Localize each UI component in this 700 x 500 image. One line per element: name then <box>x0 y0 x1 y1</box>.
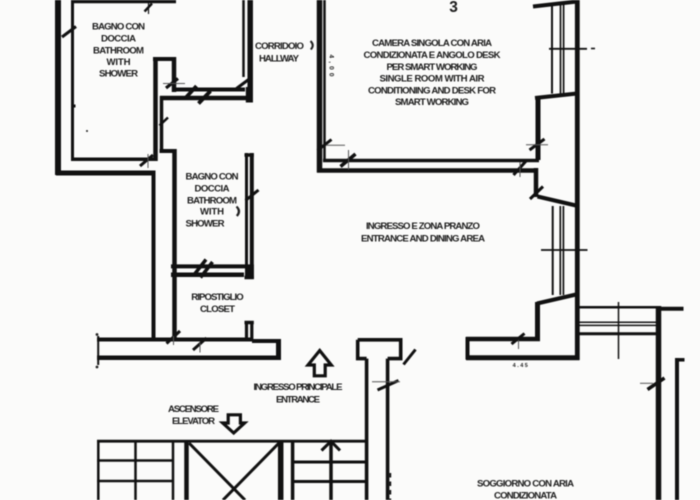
svg-text:ELEVATOR: ELEVATOR <box>172 416 215 427</box>
svg-text:CLOSET: CLOSET <box>200 304 235 315</box>
svg-text:DOCCIA: DOCCIA <box>101 34 136 45</box>
svg-text:CONDITIONING AND DESK FOR: CONDITIONING AND DESK FOR <box>368 86 496 97</box>
svg-text:ENTRANCE: ENTRANCE <box>276 395 321 406</box>
svg-text:3: 3 <box>449 0 458 16</box>
svg-text:4,00: 4,00 <box>328 55 335 77</box>
svg-text:CONDIZIONATA: CONDIZIONATA <box>494 491 557 500</box>
svg-text:SINGLE ROOM WITH AIR: SINGLE ROOM WITH AIR <box>380 74 485 85</box>
svg-text:CAMERA SINGOLA CON ARIA: CAMERA SINGOLA CON ARIA <box>372 38 492 49</box>
svg-text:BAGNO CON: BAGNO CON <box>92 22 145 33</box>
svg-text:ENTRANCE AND DINING AREA: ENTRANCE AND DINING AREA <box>361 234 485 245</box>
svg-text:PER SMART WORKING: PER SMART WORKING <box>387 62 478 73</box>
svg-text:INGRESSO E ZONA PRANZO: INGRESSO E ZONA PRANZO <box>366 221 481 232</box>
svg-text:BAGNO CON: BAGNO CON <box>186 172 239 183</box>
svg-text:CONDIZIONATA E ANGOLO DESK: CONDIZIONATA E ANGOLO DESK <box>364 50 501 61</box>
svg-text:ASCENSORE: ASCENSORE <box>168 404 220 415</box>
svg-text:SHOWER: SHOWER <box>99 69 138 80</box>
svg-text:INGRESSO PRINCIPALE: INGRESSO PRINCIPALE <box>254 382 344 393</box>
svg-text:CORRIDOIO: CORRIDOIO <box>255 41 305 52</box>
svg-text:WITH: WITH <box>200 207 224 218</box>
svg-text:SHOWER: SHOWER <box>186 219 225 230</box>
svg-text:BATHROOM: BATHROOM <box>187 196 237 207</box>
svg-text:SMART WORKING: SMART WORKING <box>395 97 469 108</box>
svg-text:DOCCIA: DOCCIA <box>195 184 230 195</box>
svg-text:WITH: WITH <box>107 57 131 68</box>
svg-text:BATHROOM: BATHROOM <box>93 46 144 57</box>
svg-text:RIPOSTIGLIO: RIPOSTIGLIO <box>191 292 244 303</box>
svg-text:HALLWAY: HALLWAY <box>259 54 300 65</box>
svg-text:4.45: 4.45 <box>513 363 530 369</box>
svg-text:SOGGIORNO CON ARIA: SOGGIORNO CON ARIA <box>477 479 574 490</box>
